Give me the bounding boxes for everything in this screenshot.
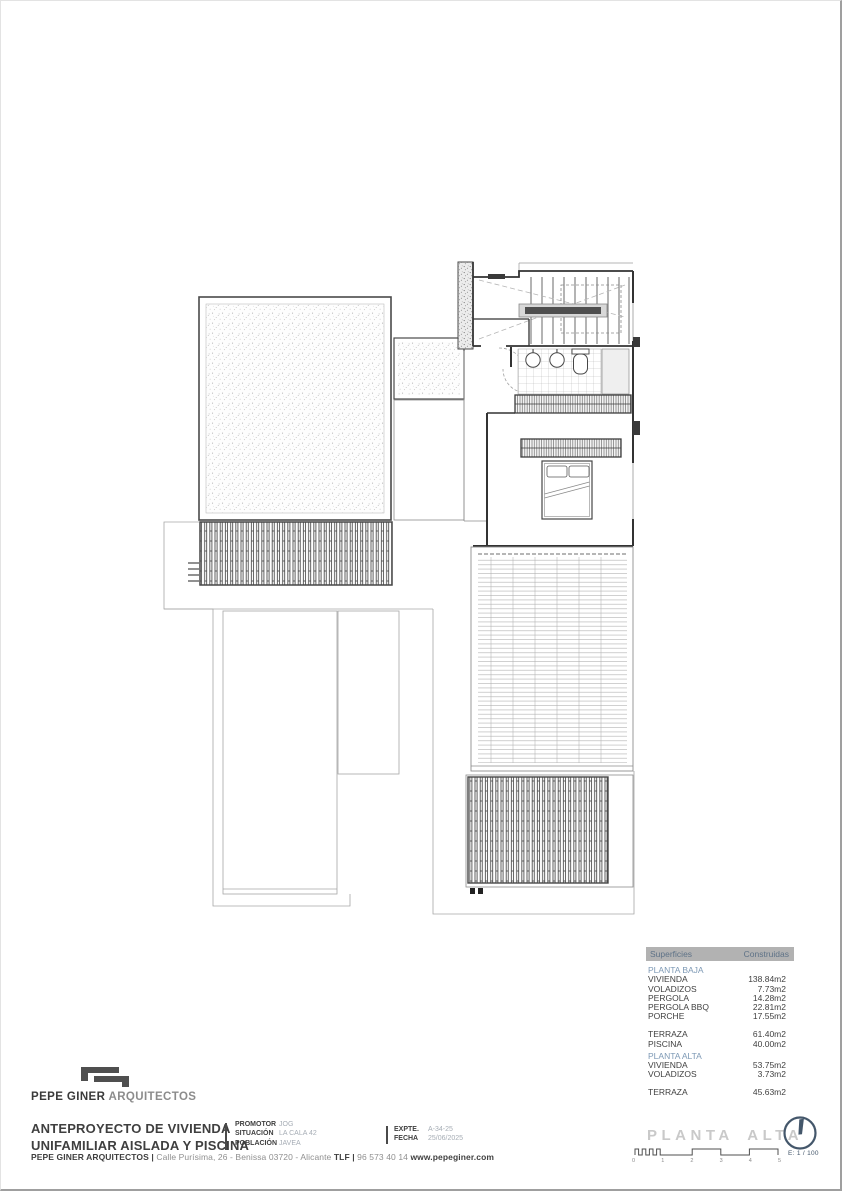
wardrobe-south (521, 439, 621, 457)
info-field: PROMOTORJOG (235, 1120, 317, 1129)
exterior-wall-hatch (458, 262, 473, 349)
titleblock-divider-2 (386, 1126, 388, 1144)
gravel-roof-small (394, 338, 464, 399)
areas-table: Superficies Construidas PLANTA BAJAVIVIE… (646, 947, 794, 1098)
info-field: SITUACIÓNLA CALA 42 (235, 1129, 317, 1138)
deck-terrace (471, 547, 633, 771)
scale-ticks: 012345 (632, 1158, 781, 1164)
graphic-scale-bar (631, 1144, 796, 1158)
address-line: PEPE GINER ARQUITECTOS | Calle Purísima,… (31, 1152, 494, 1162)
titleblock-divider (225, 1123, 227, 1150)
area-row: TERRAZA45.63m2 (646, 1088, 794, 1097)
brand-name-light: ARQUITECTOS (108, 1091, 196, 1103)
scale-label: E: 1 / 100 (788, 1150, 819, 1157)
pepe-giner-logo-icon (79, 1065, 131, 1089)
area-row: VOLADIZOS3.73m2 (646, 1070, 794, 1079)
bathroom (511, 347, 629, 394)
area-row: PISCINA40.00m2 (646, 1040, 794, 1049)
pergola-louvers-west (188, 522, 392, 585)
void-room-outline (394, 400, 464, 520)
gravel-roof-terrace (199, 297, 391, 520)
info-field: EXPTE.A-34-25 (394, 1125, 463, 1134)
toilet-icon (572, 349, 589, 374)
bed-icon (542, 461, 592, 519)
project-title-line1: ANTEPROYECTO DE VIVIENDA (31, 1121, 241, 1138)
col-construidas: Construidas (744, 950, 789, 959)
col-superficies: Superficies (650, 950, 692, 959)
project-info-fields: PROMOTORJOGSITUACIÓNLA CALA 42POBLACIÓNJ… (235, 1120, 317, 1148)
info-field: FECHA25/06/2025 (394, 1134, 463, 1143)
brand-logo: PEPE GINER ARQUITECTOS (31, 1065, 251, 1103)
brand-name-strong: PEPE GINER (31, 1091, 105, 1103)
area-row: PORCHE17.55m2 (646, 1012, 794, 1021)
drawing-sheet: Superficies Construidas PLANTA BAJAVIVIE… (0, 0, 842, 1191)
project-file-fields: EXPTE.A-34-25FECHA25/06/2025 (394, 1125, 463, 1144)
sheet-title: PLANTA ALTA (647, 1127, 803, 1144)
brand-name: PEPE GINER ARQUITECTOS (31, 1091, 251, 1103)
areas-table-header: Superficies Construidas (646, 947, 794, 961)
info-field: POBLACIÓNJAVEA (235, 1139, 317, 1148)
wardrobe-north (515, 395, 631, 413)
project-title: ANTEPROYECTO DE VIVIENDA UNIFAMILIAR AIS… (31, 1121, 241, 1154)
pergola-louvers-south (466, 775, 633, 894)
areas-table-body: PLANTA BAJAVIVIENDA138.84m2VOLADIZOS7.73… (646, 966, 794, 1097)
